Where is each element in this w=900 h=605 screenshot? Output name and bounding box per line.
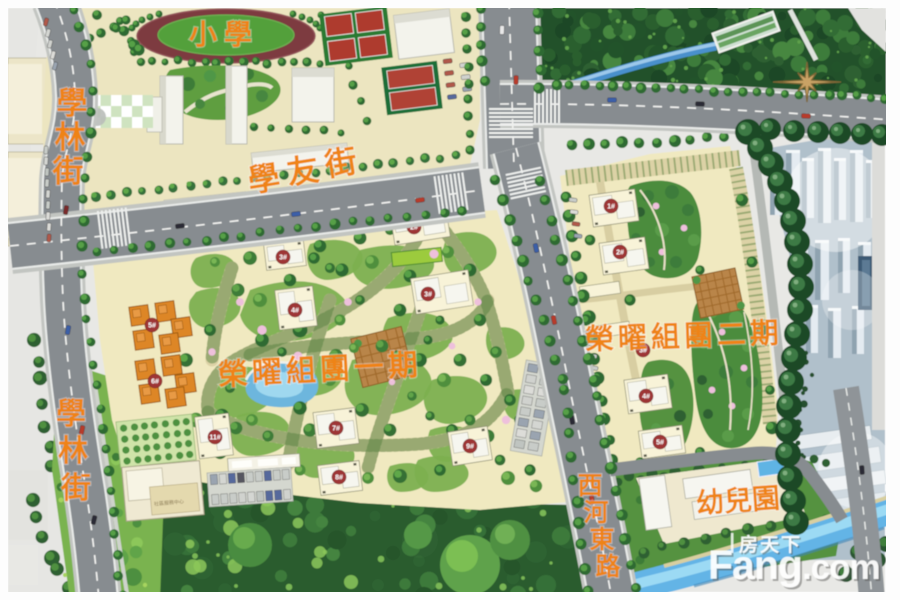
svg-text:學: 學	[57, 86, 88, 121]
svg-text:街: 街	[60, 472, 91, 505]
svg-text:Fang.com: Fang.com	[708, 542, 880, 588]
svg-text:1#: 1#	[607, 204, 615, 211]
svg-text:4#: 4#	[642, 394, 650, 401]
svg-text:8#: 8#	[335, 475, 343, 482]
svg-text:林: 林	[55, 120, 86, 155]
svg-text:友: 友	[284, 151, 321, 192]
svg-text:4#: 4#	[291, 308, 299, 315]
svg-text:林: 林	[58, 435, 88, 468]
svg-text:幼兒園: 幼兒園	[695, 482, 781, 519]
svg-text:小學: 小學	[189, 19, 259, 50]
svg-text:5#: 5#	[148, 323, 156, 330]
svg-text:路: 路	[595, 553, 621, 581]
svg-text:3#: 3#	[424, 292, 432, 299]
svg-text:3#: 3#	[279, 255, 287, 262]
svg-text:學: 學	[56, 398, 86, 431]
svg-text:河: 河	[583, 499, 608, 527]
svg-text:西: 西	[577, 472, 602, 500]
svg-text:6#: 6#	[151, 379, 159, 386]
svg-text:東: 東	[589, 526, 614, 554]
svg-text:2#: 2#	[616, 250, 624, 257]
svg-text:7#: 7#	[332, 426, 340, 433]
svg-text:9#: 9#	[466, 444, 474, 451]
svg-text:5#: 5#	[656, 440, 664, 447]
svg-text:街: 街	[321, 143, 359, 184]
svg-text:11#: 11#	[209, 435, 220, 442]
svg-text:街: 街	[52, 154, 84, 189]
svg-text:學: 學	[245, 159, 282, 200]
